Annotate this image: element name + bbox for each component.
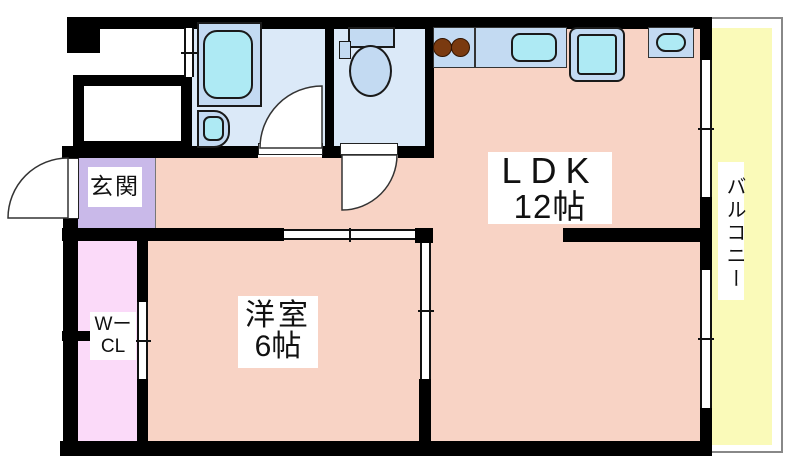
- closet-sliding-door: [137, 302, 148, 379]
- wall-pillar: [67, 17, 100, 53]
- toilet-bowl-icon: [349, 45, 392, 97]
- wall-closet-lower: [137, 379, 148, 441]
- kitchen-sink-icon: [511, 33, 557, 62]
- stove-burner-icon: [433, 38, 452, 57]
- balcony-window-lower: [700, 270, 712, 408]
- balcony-window-upper: [700, 60, 712, 197]
- entrance-label: 玄関: [88, 167, 142, 207]
- bedroom-ldk-sliding-door: [420, 243, 431, 379]
- window-tick: [698, 338, 714, 340]
- western-room-label: 洋室 6帖: [238, 296, 318, 368]
- wall-hall-north-1: [62, 146, 258, 158]
- bathroom-door-arc: [260, 86, 322, 148]
- washer-pan-sink-icon: [656, 33, 686, 52]
- kitchen-island-sink-icon: [577, 34, 617, 75]
- toilet-flush-icon: [339, 41, 351, 59]
- closet-label-line1: Wー: [95, 314, 132, 336]
- wall-right-1: [700, 17, 712, 62]
- wall-bedroom-ldk-corner: [415, 228, 433, 243]
- balcony-label: バルコニー: [718, 162, 744, 300]
- window-tick: [418, 310, 434, 312]
- closet-label: Wー CL: [90, 312, 136, 360]
- wall-right-2: [700, 197, 712, 270]
- wash-basin-bowl-icon: [203, 116, 224, 141]
- storage-room: [73, 75, 192, 152]
- stove-burner-icon: [451, 38, 470, 57]
- western-room-name: 洋室: [245, 301, 311, 332]
- wall-closet-upper: [137, 240, 148, 302]
- bathroom-window: [184, 28, 194, 77]
- toilet-door-arc: [342, 155, 397, 210]
- floor-plan: バルコニー 玄関 L: [0, 0, 800, 468]
- window-tick: [698, 128, 714, 130]
- window-tick: [349, 228, 351, 242]
- hall-bedroom-sliding-door: [284, 229, 415, 240]
- wall-ldk-stub: [563, 228, 712, 242]
- wall-bedroom-ldk-lower: [419, 379, 431, 441]
- entrance-door-arc: [8, 158, 68, 218]
- closet-label-line2: CL: [101, 336, 125, 358]
- bathtub-icon: [203, 30, 253, 99]
- balcony: バルコニー: [710, 17, 783, 453]
- window-tick: [135, 340, 151, 342]
- window-tick: [181, 52, 197, 54]
- wall-right-3: [700, 408, 712, 456]
- wall-hall-bedroom: [62, 228, 284, 241]
- toilet-door-leaf: [340, 143, 398, 155]
- counter-divider: [474, 27, 476, 68]
- wall-bottom: [60, 441, 712, 456]
- wall-bath-toilet: [325, 17, 334, 149]
- ldk-label: LDK 12帖: [488, 152, 612, 224]
- ldk-name: LDK: [501, 153, 598, 190]
- ldk-size: 12帖: [514, 190, 587, 224]
- western-room-size: 6帖: [255, 332, 302, 363]
